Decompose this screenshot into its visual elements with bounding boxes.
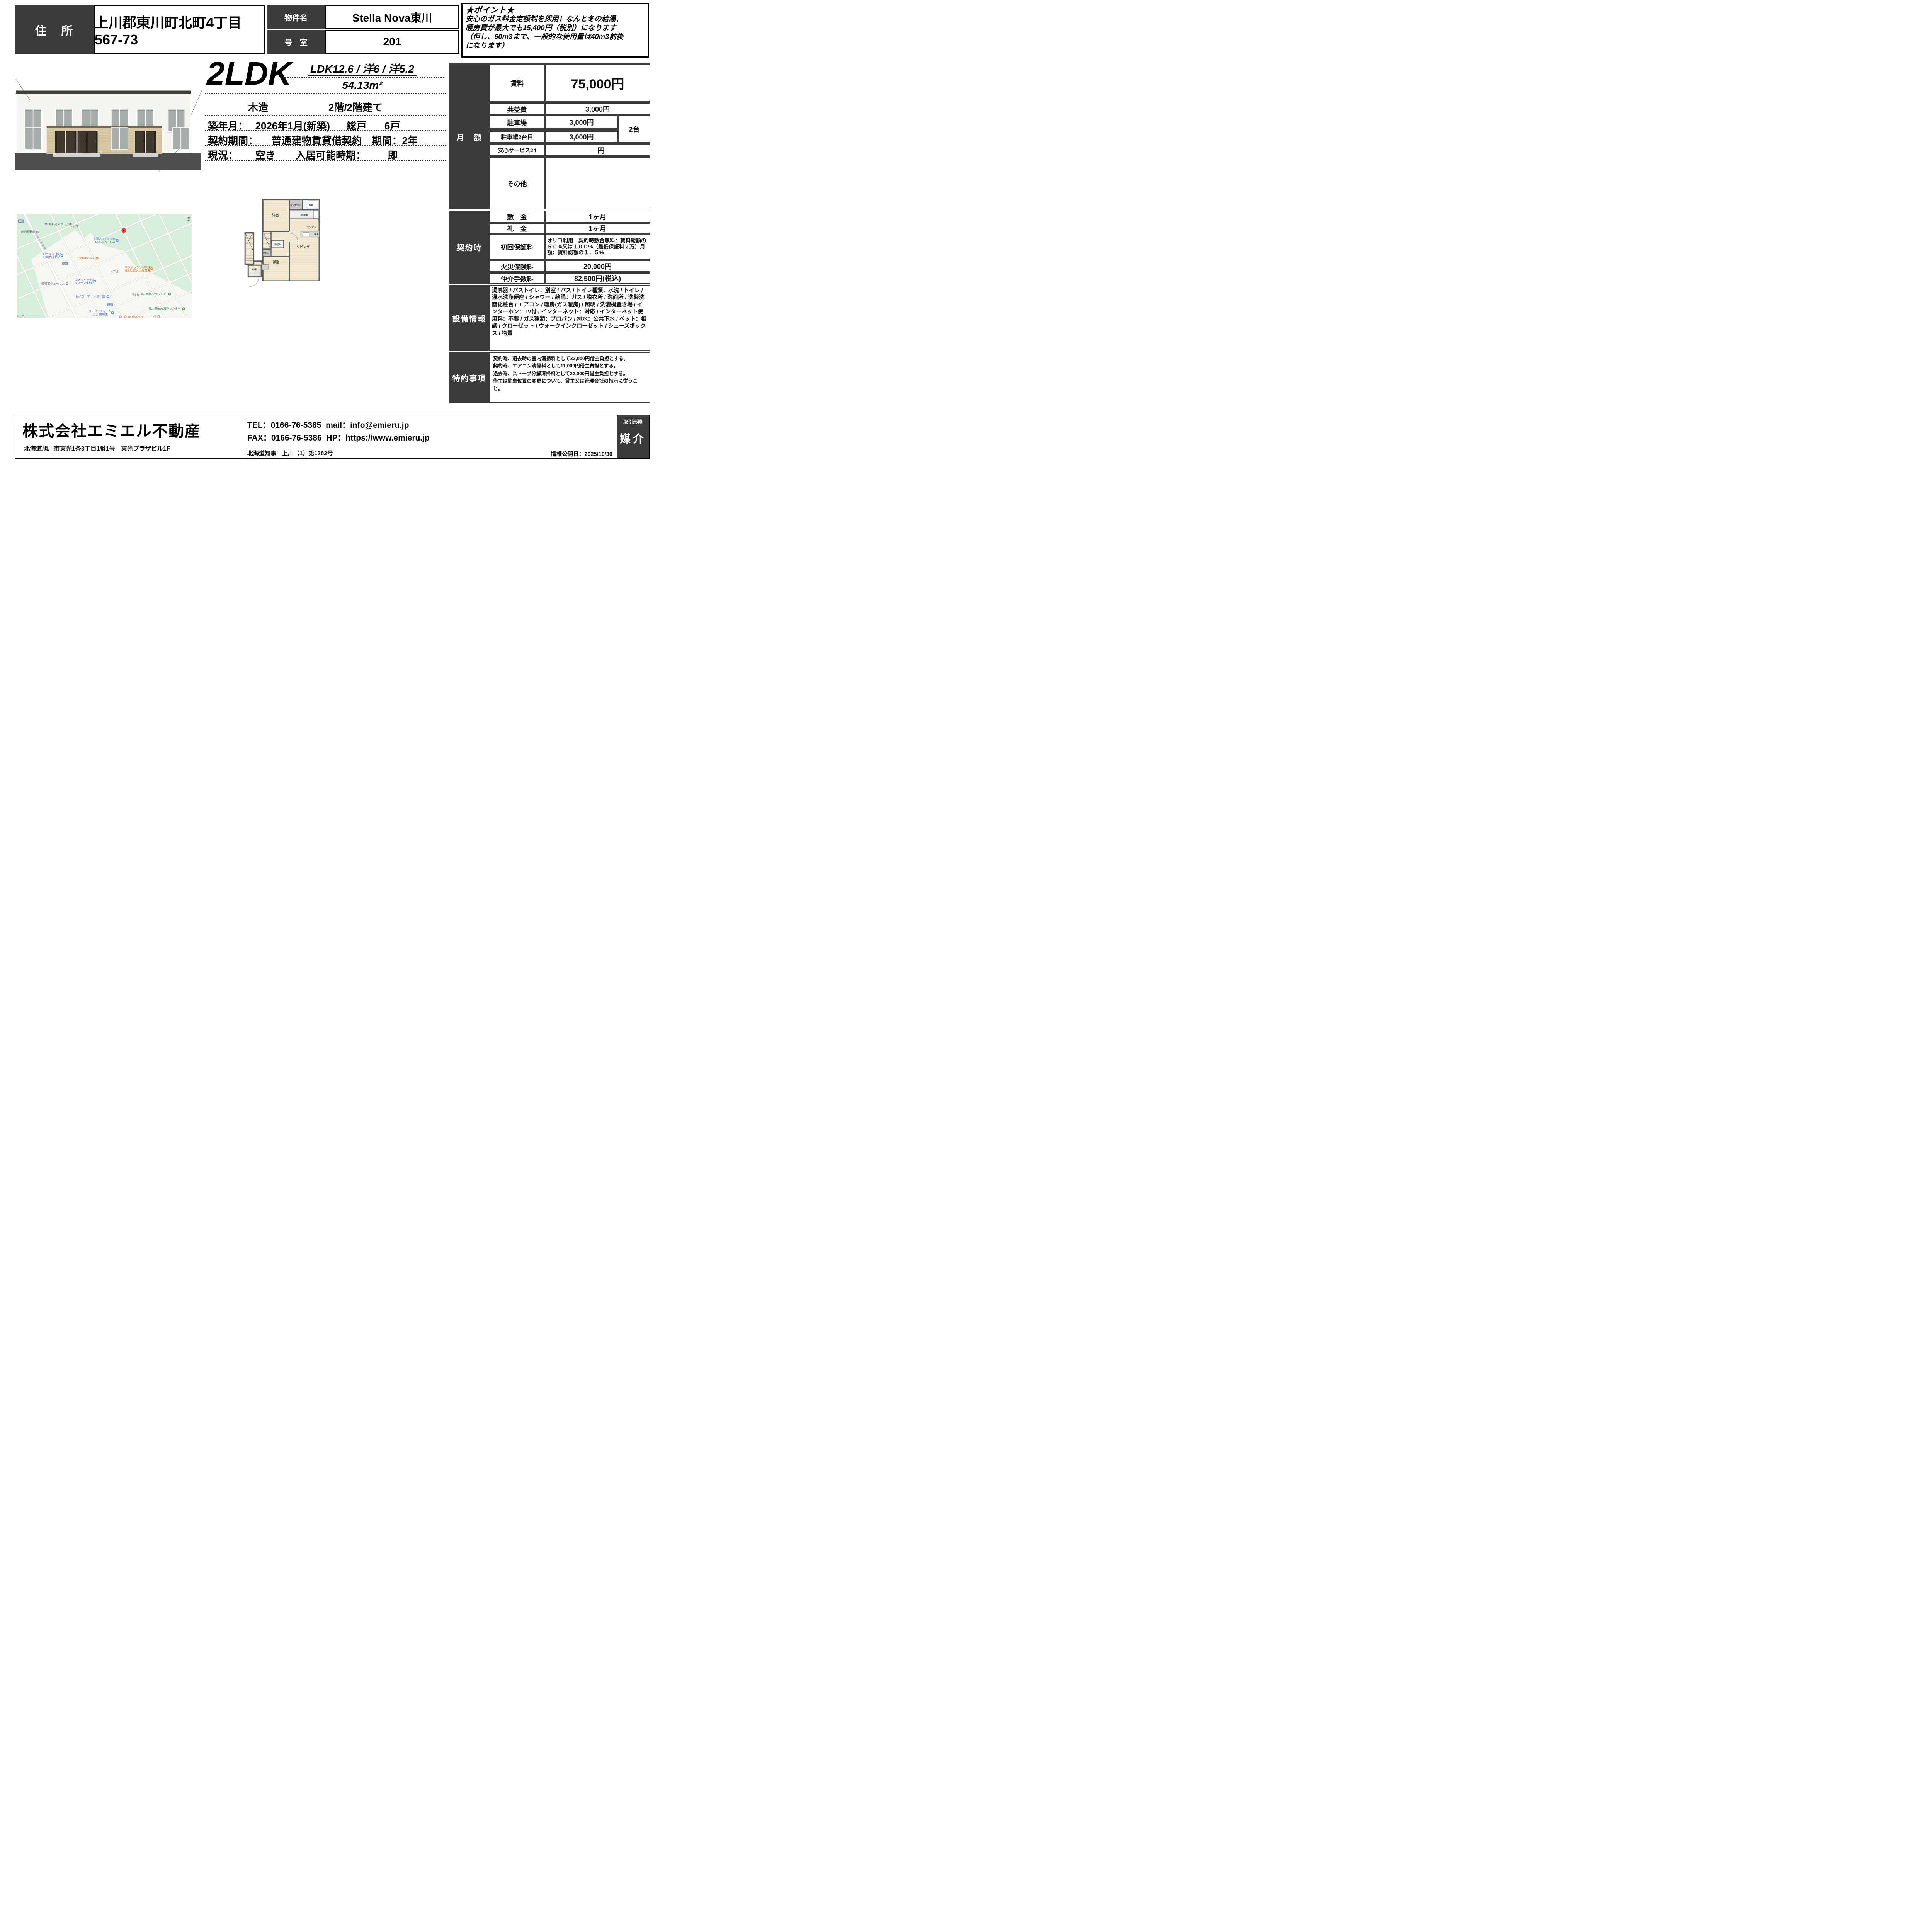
company-address: 北海道旭川市東光1条3丁目1番1号 東光プラザビル1F — [24, 444, 170, 452]
address-value: 上川郡東川町北町4丁目567-73 — [94, 5, 265, 54]
move-in-label: 入居可能時期： — [296, 150, 366, 161]
built-value: 2026年1月(新築) — [255, 120, 330, 132]
deposit-value: 1ヶ月 — [546, 211, 650, 222]
room-label: クロゼット — [263, 252, 271, 254]
front-door-arc — [249, 277, 259, 287]
text-line: 契約時、エアコン清掃料として11,000円借主負担とする。 — [493, 362, 646, 370]
text-line: 契約時、退去時の室内清掃料として33,000円借主負担とする。 — [493, 355, 646, 362]
points-title: ★ポイント★ — [466, 6, 645, 15]
text-line: 借主は駐車位置の変更について、貸主又は管理会社の指示に従うこと。 — [493, 378, 646, 393]
svg-text:1160: 1160 — [19, 220, 23, 223]
special-terms: 契約時、退去時の室内清掃料として33,000円借主負担とする。契約時、エアコン清… — [490, 353, 650, 402]
room-label: トイレ — [275, 243, 281, 246]
room-label: 洋室 — [272, 213, 279, 217]
orange-poi-pin-icon — [150, 267, 153, 270]
key-money-value: 1ヶ月 — [546, 224, 650, 233]
parking-count: 2台 — [619, 116, 650, 142]
license-number: 北海道知事 上川（1）第1282号 — [247, 449, 333, 457]
map-label: 5丁目 — [17, 315, 25, 318]
property-name-label: 物件名 — [267, 5, 325, 29]
status-label: 現況： — [208, 150, 238, 161]
status-value: 空き — [255, 150, 275, 161]
room-label: リビング — [297, 245, 310, 249]
total-units-value: 6戸 — [384, 120, 400, 132]
tel: TEL：0166-76-5385 — [247, 421, 321, 430]
band-contract: 契約時 — [449, 211, 489, 283]
band-separator — [449, 351, 650, 352]
anshin-value: ―円 — [546, 145, 650, 155]
band-equipment: 設備情報 — [449, 286, 489, 350]
map-label: 18 BAKERY — [128, 315, 144, 318]
map-svg: 116011601160 有料老人ホーム華(株)藤田組大雪木工 (Taisets… — [17, 214, 192, 318]
grid-icon — [187, 217, 190, 221]
map-label: 4丁目 — [111, 270, 118, 274]
deal-type-label: 取引形態 — [617, 418, 649, 425]
route-badge: 1160 — [62, 262, 68, 265]
map-label: natsuかふぇ — [79, 256, 95, 260]
floor-area: 54.13m² — [280, 79, 444, 92]
band-monthly: 月 額 — [449, 65, 489, 209]
text-line: になります） — [466, 41, 645, 50]
map-label: 3丁目 — [132, 293, 139, 296]
blue-poi-pin-icon — [116, 239, 119, 242]
layout-type: 2LDK — [207, 58, 291, 89]
total-units-label: 総戸 — [347, 120, 367, 132]
map-label: パンドゥランドネ(毎金&第2第4土曜営業) — [124, 265, 152, 272]
equipment-text: 湯沸器 / バストイレ：別室 / バス / トイレ種類：水洗 / トイレ / 温… — [490, 286, 650, 350]
fire-insurance-value: 20,000円 — [546, 261, 650, 271]
route-badge: 1160 — [18, 220, 24, 223]
map-label: ローソン 東川北町六丁目店 — [43, 252, 61, 259]
deal-type-value: 媒介 — [617, 430, 649, 446]
text-line: （但し、60m3まで、一般的な使用量は40m3前後 — [466, 32, 645, 41]
brokerage-label: 仲介手数料 — [490, 274, 544, 283]
property-flyer-page: 住 所 上川郡東川町北町4丁目567-73 物件名 Stella Nova東川 … — [0, 0, 678, 479]
parking2-label: 駐車場2台目 — [490, 132, 544, 142]
brokerage-value: 82,500円(税込) — [546, 274, 650, 283]
rent-label: 賃料 — [490, 65, 544, 101]
publish-date: 情報公開日：2025/10/30 — [485, 450, 612, 458]
route-badge: 1160 — [107, 303, 113, 306]
text-line: 退去時、ストーブ分解清掃料として22,000円借主負担とする。 — [493, 370, 646, 378]
blue-poi-pin-icon — [93, 280, 96, 283]
gray-poi-pin-icon — [65, 282, 68, 286]
text-line: 安心のガス料金定額制を採用！なんと冬の給湯、 — [466, 15, 645, 24]
key-money-label: 礼 金 — [490, 224, 544, 233]
floor-info: 2階/2階建て — [328, 100, 383, 114]
guarantee-label: 初回保証料 — [490, 235, 544, 259]
band-special: 特約事項 — [449, 353, 489, 402]
parking-label: 駐車場 — [490, 116, 544, 128]
price-table: 月 額 契約時 設備情報 特約事項 賃料 75,000円 共益費 3,000円 … — [449, 63, 650, 403]
map-label: セイコーマート 東川店 — [75, 294, 105, 298]
ground — [15, 153, 201, 170]
contract-period-label: 契約期間： — [208, 135, 258, 146]
gray-poi-pin-icon — [44, 223, 48, 226]
room-number-value: 201 — [325, 30, 459, 54]
contract-period-value: 普通建物賃貸借契約 期間：2年 — [271, 135, 417, 146]
map-label: 美容室シェーリム — [41, 282, 65, 286]
common-fee-label: 共益費 — [490, 104, 544, 114]
common-fee-value: 3,000円 — [546, 104, 650, 114]
map-label: コメリハード&グリーン東川店 — [75, 278, 95, 284]
band-separator — [449, 209, 650, 211]
orange-poi-pin-icon — [95, 257, 99, 260]
map-label: 6丁目 — [71, 225, 78, 228]
entrance-step-right — [133, 153, 159, 157]
anshin-label: 安心サービス24 — [490, 145, 544, 155]
rooms-detail: LDK12.6 / 洋6 / 洋5.2 — [308, 63, 417, 76]
parking2-value: 3,000円 — [546, 132, 617, 142]
location-map: 116011601160 有料老人ホーム華(株)藤田組大雪木工 (Taisets… — [17, 214, 192, 318]
other-value — [546, 158, 650, 209]
points-box: ★ポイント★ 安心のガス料金定額制を採用！なんと冬の給湯、暖房費が最大でも15,… — [461, 3, 649, 58]
floor-plan: 洋室クロゼット浴室洗面室キッチンリビングトイレクロゼット洋室玄関 — [241, 194, 331, 289]
points-text: 安心のガス料金定額制を採用！なんと冬の給湯、暖房費が最大でも15,400円（税別… — [466, 15, 645, 50]
blue-poi-pin-icon — [60, 254, 63, 257]
map-label: 東川町B&G海洋センター — [148, 306, 180, 310]
entrance-doors-right — [135, 131, 156, 154]
green-poi-pin-icon — [182, 307, 185, 310]
building-exterior-image — [14, 75, 203, 172]
rent-value: 75,000円 — [546, 65, 650, 101]
room-number-label: 号 室 — [267, 30, 325, 54]
map-label: 東川町民グラウンド — [140, 292, 167, 296]
entrance-step-left — [53, 153, 100, 157]
entrance-step — [262, 264, 269, 270]
structure: 木造 — [248, 100, 268, 114]
guarantee-value: オリコ利用 契約時敷金無料：賃料総額の５０%又は１００%（最低保証料２万）月額：… — [546, 235, 650, 259]
property-name-value: Stella Nova東川 — [325, 5, 459, 29]
band-separator — [449, 284, 650, 285]
roof-edge — [16, 91, 191, 94]
other-label: その他 — [490, 158, 544, 209]
hp: HP：https://www.emieru.jp — [326, 434, 430, 442]
stairs-lower — [245, 233, 254, 264]
company-name: 株式会社エミエル不動産 — [22, 418, 201, 441]
blue-poi-pin-icon — [111, 311, 114, 315]
map-label: 大雪木工 (TaisetsuMokko Co.,Ltd) — [93, 237, 117, 244]
property-summary: 2LDK LDK12.6 / 洋6 / 洋5.2 54.13m² 木造 2階/2… — [205, 60, 446, 161]
parking-value: 3,000円 — [546, 116, 617, 128]
built-label: 築年月： — [208, 120, 248, 132]
floor-plan-svg: 洋室クロゼット浴室洗面室キッチンリビングトイレクロゼット洋室玄関 — [241, 194, 331, 289]
dotted-divider — [280, 77, 444, 78]
address-label: 住 所 — [15, 5, 94, 54]
map-label: 2丁目 — [153, 315, 160, 318]
entrance-doors-left — [55, 131, 98, 154]
footer: 株式会社エミエル不動産 北海道旭川市東光1条3丁目1番1号 東光プラザビル1F … — [15, 415, 650, 459]
fax: FAX：0166-76-5386 — [247, 434, 322, 442]
first-floor-center-window — [111, 127, 128, 150]
move-in-value: 即 — [388, 150, 398, 161]
building-render — [14, 75, 203, 172]
text-line: 暖房費が最大でも15,400円（税別）になります — [466, 24, 645, 32]
svg-text:1160: 1160 — [63, 263, 68, 265]
deal-type-box: 取引形態 媒介 — [617, 415, 649, 458]
map-label: 有料老人ホーム華 — [49, 222, 72, 226]
orange-poi-pin-icon — [124, 315, 127, 318]
kitchen-sink — [302, 232, 310, 236]
deposit-label: 敷 金 — [490, 211, 544, 222]
fire-insurance-label: 火災保険料 — [490, 261, 544, 271]
svg-text:1160: 1160 — [108, 304, 112, 306]
orange-poi-pin-icon — [119, 315, 122, 318]
room-label: キッチン — [306, 225, 317, 228]
mail: mail：info@emieru.jp — [326, 421, 409, 430]
washer-space — [313, 211, 318, 218]
blue-poi-pin-icon — [106, 295, 109, 298]
green-poi-pin-icon — [168, 293, 171, 296]
room-label: 洋室 — [273, 260, 279, 264]
